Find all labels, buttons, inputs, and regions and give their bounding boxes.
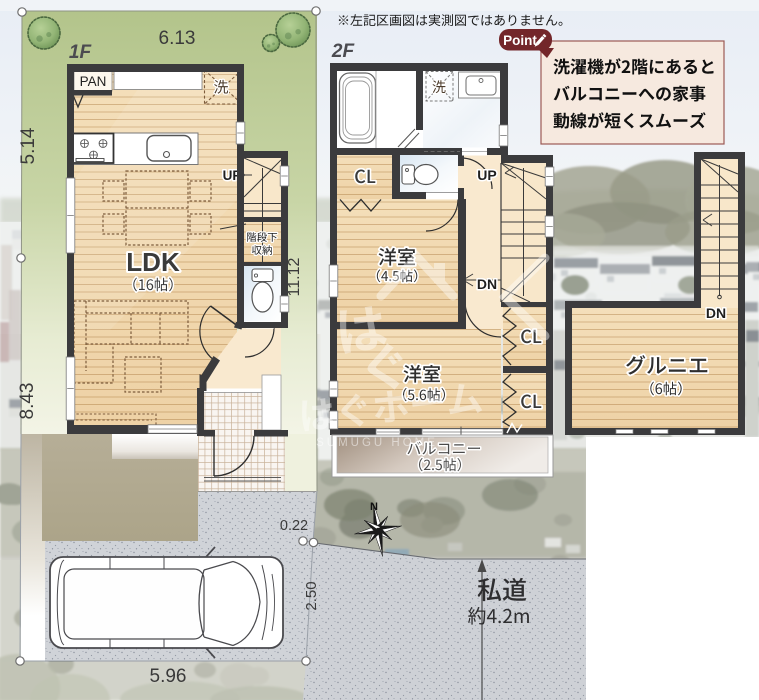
- svg-text:Point: Point: [503, 33, 537, 48]
- svg-text:0.22: 0.22: [280, 518, 308, 534]
- svg-text:N: N: [370, 501, 378, 513]
- svg-text:2.50: 2.50: [303, 581, 320, 610]
- svg-text:6.13: 6.13: [159, 28, 196, 49]
- svg-text:8.43: 8.43: [17, 383, 38, 420]
- svg-text:SUMUGU HOME: SUMUGU HOME: [316, 437, 438, 449]
- svg-text:DN: DN: [477, 276, 497, 292]
- svg-text:1F: 1F: [69, 42, 93, 63]
- svg-text:PAN: PAN: [80, 74, 107, 89]
- svg-text:11.12: 11.12: [286, 257, 303, 296]
- svg-text:LDK: LDK: [126, 247, 180, 277]
- svg-text:UP: UP: [477, 167, 496, 183]
- svg-text:2F: 2F: [331, 41, 356, 62]
- svg-text:5.14: 5.14: [18, 127, 39, 164]
- svg-text:5.96: 5.96: [150, 666, 187, 687]
- svg-text:DN: DN: [706, 305, 726, 321]
